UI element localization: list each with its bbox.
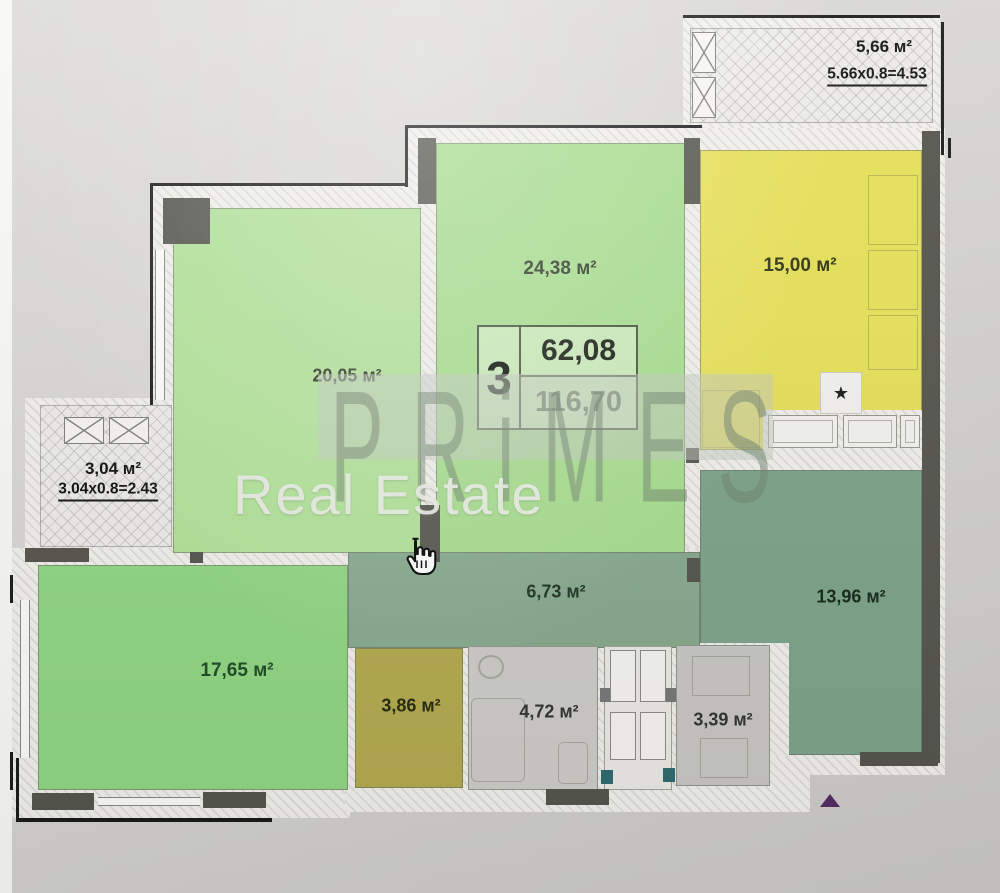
duct-connector (600, 688, 610, 702)
outline (150, 183, 407, 186)
window-x-icon (692, 77, 716, 118)
duct (610, 712, 636, 760)
duct (640, 712, 666, 760)
room-label-3-39: 3,39 м² (693, 710, 752, 731)
outline-tick (948, 138, 951, 158)
outline (405, 125, 408, 187)
window-x-icon (109, 417, 149, 444)
balcony-formula-3-04: 3.04x0.8=2.43 (58, 481, 158, 502)
window (98, 797, 200, 806)
room-label-17-65: 17,65 м² (200, 660, 273, 682)
star-box: ★ (820, 372, 862, 414)
hand-cursor-icon (402, 535, 438, 577)
bathroom-sink-icon (478, 655, 504, 679)
outline (16, 758, 19, 820)
toilet (558, 742, 588, 784)
wall-pillar (687, 558, 700, 582)
room-label-13-96: 13,96 м² (816, 587, 885, 608)
wc-fixture (700, 738, 748, 778)
wall-pillar (684, 138, 700, 204)
outline (150, 183, 153, 405)
wall-pillar (32, 793, 94, 810)
outline-tick (10, 752, 13, 790)
bathtub (471, 698, 525, 782)
duct (640, 650, 666, 702)
floorplan-image[interactable]: ★ 20,05 м² 24,38 м² 15,00 м² 17,65 м² 6,… (0, 0, 1000, 893)
star-icon: ★ (833, 383, 849, 404)
balcony-label-5-66: 5,66 м² (856, 37, 912, 57)
hall-6-73 (348, 552, 700, 648)
wall-pillar (163, 198, 210, 244)
teal-wall-segment (663, 768, 675, 782)
window (20, 600, 30, 758)
outline (941, 22, 944, 155)
wall-pillar (546, 789, 609, 805)
duct (610, 650, 636, 702)
wall-pillar (860, 752, 938, 766)
room-label-15-00: 15,00 м² (763, 255, 836, 277)
room-storage-3-86 (355, 648, 463, 788)
duct-connector (666, 688, 676, 702)
washing-machine (692, 656, 750, 696)
room-bedroom-17-65 (38, 565, 348, 790)
window (155, 250, 165, 400)
kitchen-counter (868, 315, 918, 370)
wall-pillar (190, 552, 203, 563)
furniture-box (900, 415, 920, 448)
kitchen-stove (868, 175, 918, 245)
outline-tick (10, 575, 13, 603)
outline (683, 15, 940, 18)
wall-right-column (922, 131, 940, 763)
balcony-label-3-04: 3,04 м² (85, 459, 141, 479)
balcony-formula-5-66: 5.66x0.8=4.53 (827, 66, 927, 87)
room-label-3-86: 3,86 м² (381, 696, 440, 717)
window-x-icon (64, 417, 104, 444)
room-label-4-72: 4,72 м² (519, 702, 578, 723)
room-label-6-73: 6,73 м² (526, 582, 585, 603)
watermark-subtitle: Real Estate (233, 462, 545, 527)
wall-pillar (25, 548, 89, 562)
outline (405, 125, 702, 128)
window-x-icon (692, 32, 716, 73)
screenshot-stage: ★ 20,05 м² 24,38 м² 15,00 м² 17,65 м² 6,… (0, 0, 1000, 893)
furniture-box (843, 415, 897, 448)
teal-wall-segment (601, 770, 613, 784)
wall-pillar (418, 138, 436, 204)
wall-pillar (203, 792, 266, 808)
room-label-24-38: 24,38 м² (523, 258, 596, 280)
north-triangle-marker (820, 794, 840, 807)
kitchen-sink (868, 250, 918, 310)
outline-dimension (16, 818, 272, 822)
